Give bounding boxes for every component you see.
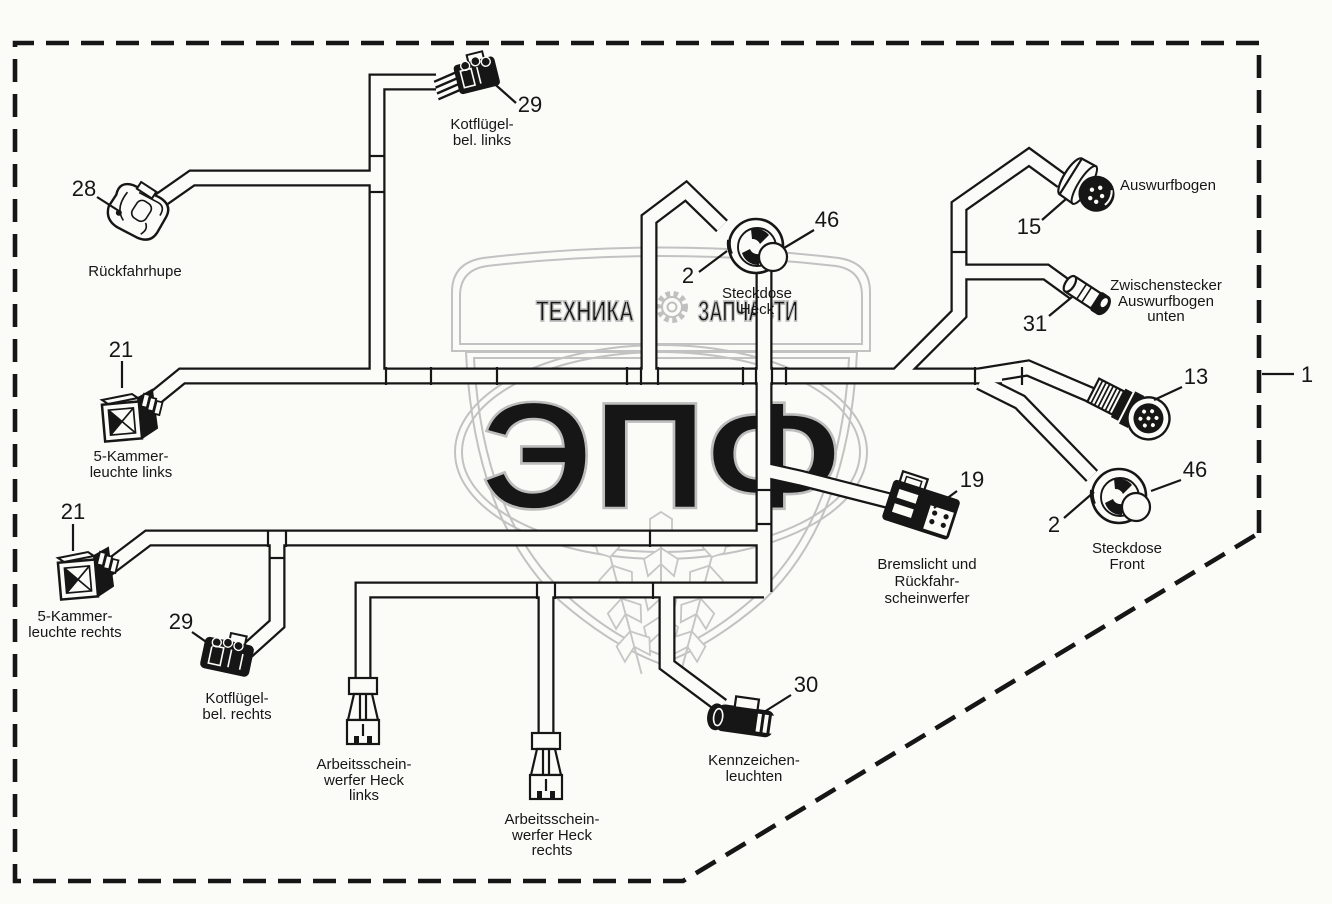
callout-number-31: 31	[1023, 311, 1047, 336]
connector-rueckfahrhupe-icon	[101, 174, 176, 247]
callout-number-21-links: 21	[109, 337, 133, 362]
label-5kammer-links-2: leuchte links	[90, 464, 173, 481]
connector-arbeitsscheinwerfer-rechts-icon	[530, 733, 562, 799]
label-kotfluegel-rechts-2: bel. rechts	[202, 706, 271, 723]
label-5kammer-links: 5-Kammer-	[93, 448, 168, 465]
callout-number-46-front: 46	[1183, 457, 1207, 482]
watermark-word-center: ЭПФ	[481, 371, 841, 541]
label-zwischenstecker: Zwischenstecker	[1110, 277, 1222, 294]
connector-rundstecker-icon	[1084, 371, 1177, 446]
callout-number-19: 19	[960, 467, 984, 492]
label-steckdose-front: Steckdose	[1092, 540, 1162, 557]
label-5kammer-rechts-2: leuchte rechts	[28, 624, 121, 641]
connector-steckdose-front-icon	[1092, 469, 1150, 523]
connector-kotfluegel-links-icon	[430, 49, 501, 100]
connector-5kammer-links-icon	[102, 390, 163, 442]
label-steckdose-front-2: Front	[1109, 556, 1145, 573]
callout-number-2-heck: 2	[682, 263, 694, 288]
label-5kammer-rechts: 5-Kammer-	[37, 608, 112, 625]
label-kennzeichenleuchten-2: leuchten	[726, 768, 783, 785]
connector-arbeitsscheinwerfer-links-icon	[347, 678, 379, 744]
label-arbeitsscheinwerfer-links: Arbeitsschein-	[316, 756, 411, 773]
label-kennzeichenleuchten: Kennzeichen-	[708, 752, 800, 769]
callout-number-30: 30	[794, 672, 818, 697]
callout-number-15: 15	[1017, 214, 1041, 239]
connector-5kammer-rechts-icon	[58, 548, 119, 600]
label-arbeitsscheinwerfer-rechts-3: rechts	[532, 842, 573, 859]
callout-number-13: 13	[1184, 364, 1208, 389]
label-kotfluegel-rechts: Kotflügel-	[205, 690, 268, 707]
parts-diagram-sheet: ТЕХНИКА ЗАПЧАСТИ ЭПФ	[0, 0, 1332, 904]
connector-auswurfbogen-icon	[1054, 154, 1124, 220]
label-arbeitsscheinwerfer-links-3: links	[349, 787, 379, 804]
connector-bremslicht-icon	[881, 469, 964, 540]
callout-number-29-rechts: 29	[169, 609, 193, 634]
label-bremslicht-3: scheinwerfer	[884, 590, 969, 607]
connector-kotfluegel-rechts-icon	[199, 628, 256, 678]
callout-number-46-heck: 46	[815, 207, 839, 232]
callout-number-2-front: 2	[1048, 512, 1060, 537]
label-bremslicht-2: Rückfahr-	[894, 573, 959, 590]
callout-number-21-rechts: 21	[61, 499, 85, 524]
label-kotfluegel-links-2: bel. links	[453, 132, 511, 149]
label-steckdose-heck: Steckdose	[722, 285, 792, 302]
label-zwischenstecker-3: unten	[1147, 308, 1185, 325]
callout-number-1-frame: 1	[1301, 362, 1313, 387]
label-auswurfbogen: Auswurfbogen	[1120, 177, 1216, 194]
label-arbeitsscheinwerfer-rechts: Arbeitsschein-	[504, 811, 599, 828]
connector-steckdose-heck-icon	[729, 219, 787, 273]
label-rueckfahrhupe: Rückfahrhupe	[88, 263, 181, 280]
wiring-diagram: ТЕХНИКА ЗАПЧАСТИ ЭПФ	[0, 0, 1332, 904]
label-bremslicht: Bremslicht und	[877, 556, 976, 573]
callout-number-29-links: 29	[518, 92, 542, 117]
label-steckdose-heck-2: Heck	[740, 301, 775, 318]
callout-number-28: 28	[72, 176, 96, 201]
label-kotfluegel-links: Kotflügel-	[450, 116, 513, 133]
watermark-word-left: ТЕХНИКА	[536, 296, 634, 328]
